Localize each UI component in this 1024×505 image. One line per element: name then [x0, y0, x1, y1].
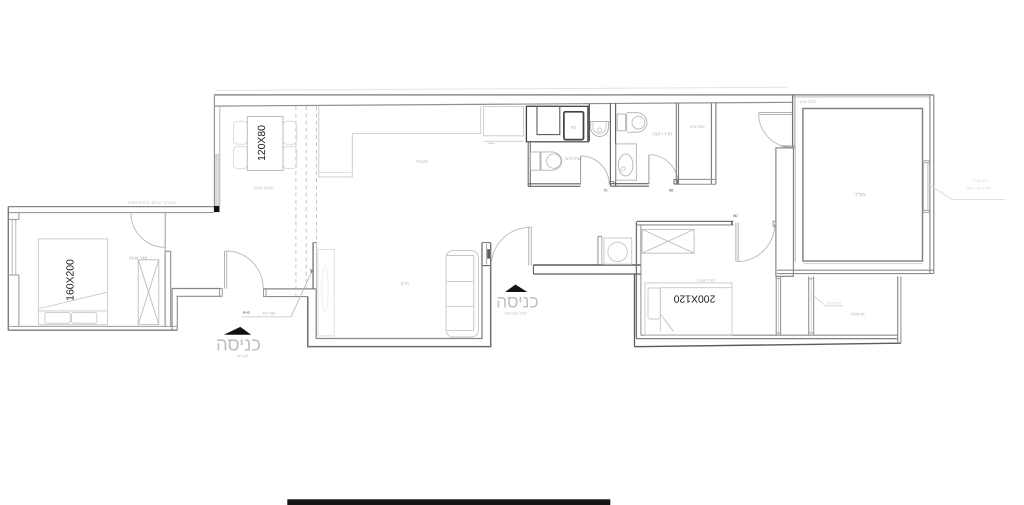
svg-text:כניסה: כניסה — [216, 333, 261, 354]
svg-text:חדר שינה: חדר שינה — [129, 255, 148, 260]
svg-text:75: 75 — [603, 189, 607, 193]
svg-text:חדר רחצה: חדר רחצה — [652, 131, 672, 136]
svg-text:160X200: 160X200 — [65, 259, 76, 301]
svg-text:חדר שינה: חדר שינה — [697, 278, 715, 283]
svg-text:כניסה: כניסה — [496, 291, 539, 311]
svg-text:מרפסת: מרפסת — [851, 311, 865, 316]
svg-text:פינת אוכל: פינת אוכל — [254, 186, 273, 191]
svg-text:נגה קיר: נגה קיר — [262, 311, 276, 316]
svg-text:אמבטיון: אמבטיון — [690, 124, 705, 129]
svg-text:חלון ממ"ד: חלון ממ"ד — [972, 178, 989, 183]
svg-text:כנף הדף: כנף הדף — [827, 301, 841, 306]
svg-text:ממ"ד: ממ"ד — [854, 192, 866, 198]
svg-text:פלדה נגרר אש: פלדה נגרר אש — [967, 186, 991, 191]
svg-text:חצרית: חצרית — [237, 353, 249, 358]
svg-text:80: 80 — [669, 189, 673, 193]
svg-text:צבע קיר גג לפי בחירת מזמין: צבע קיר גג לפי בחירת מזמין — [128, 200, 176, 205]
svg-text:מטבח: מטבח — [416, 160, 428, 165]
svg-text:200X120: 200X120 — [673, 292, 715, 303]
svg-text:חדר מדרגות: חדר מדרגות — [505, 311, 527, 316]
svg-text:שירותים: שירותים — [565, 156, 581, 161]
svg-text:לבנת חציץ: לבנת חציץ — [799, 99, 816, 104]
svg-text:80: 80 — [733, 214, 737, 218]
svg-text:מק: מק — [571, 125, 576, 130]
svg-text:120X80: 120X80 — [257, 125, 268, 161]
svg-text:סלון: סלון — [401, 281, 409, 287]
